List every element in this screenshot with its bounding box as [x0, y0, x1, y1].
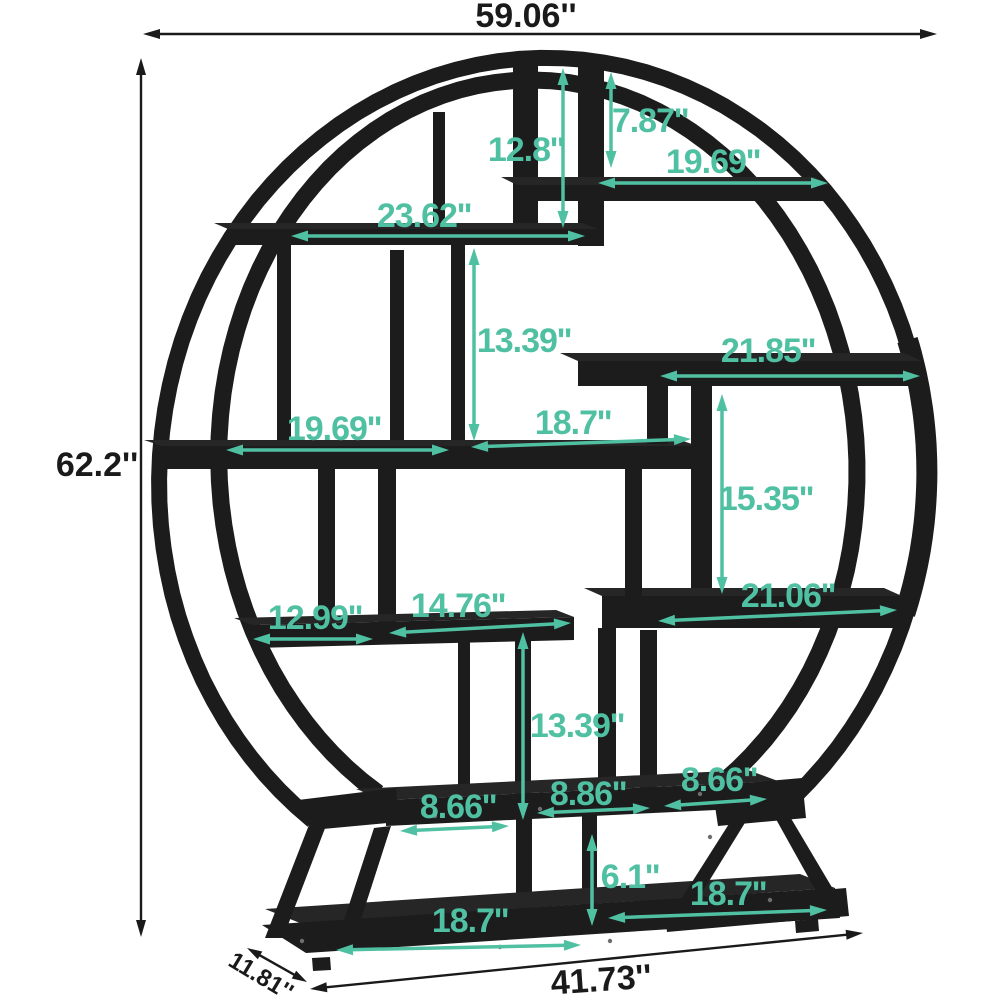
svg-text:12.99'': 12.99''	[268, 599, 362, 637]
svg-text:8.66'': 8.66''	[420, 788, 496, 826]
svg-text:19.69'': 19.69''	[666, 143, 760, 181]
svg-text:13.39'': 13.39''	[530, 707, 624, 745]
svg-text:8.66'': 8.66''	[681, 761, 757, 799]
svg-text:18.7'': 18.7''	[535, 404, 611, 442]
svg-text:13.39'': 13.39''	[477, 322, 571, 360]
svg-text:21.85'': 21.85''	[721, 332, 815, 370]
svg-text:15.35'': 15.35''	[719, 480, 813, 518]
svg-text:62.2'': 62.2''	[56, 446, 138, 484]
svg-text:59.06'': 59.06''	[475, 0, 576, 35]
svg-text:18.7'': 18.7''	[432, 902, 508, 940]
svg-text:41.73'': 41.73''	[549, 958, 653, 1000]
svg-text:14.76'': 14.76''	[411, 587, 505, 625]
svg-text:7.87'': 7.87''	[612, 102, 688, 140]
svg-text:19.69'': 19.69''	[287, 410, 381, 448]
svg-text:6.1'': 6.1''	[601, 858, 659, 896]
svg-text:21.06'': 21.06''	[741, 577, 835, 615]
svg-text:18.7'': 18.7''	[690, 875, 766, 913]
svg-text:23.62'': 23.62''	[377, 197, 471, 235]
svg-text:8.86'': 8.86''	[550, 775, 626, 813]
svg-text:12.8'': 12.8''	[488, 131, 564, 169]
